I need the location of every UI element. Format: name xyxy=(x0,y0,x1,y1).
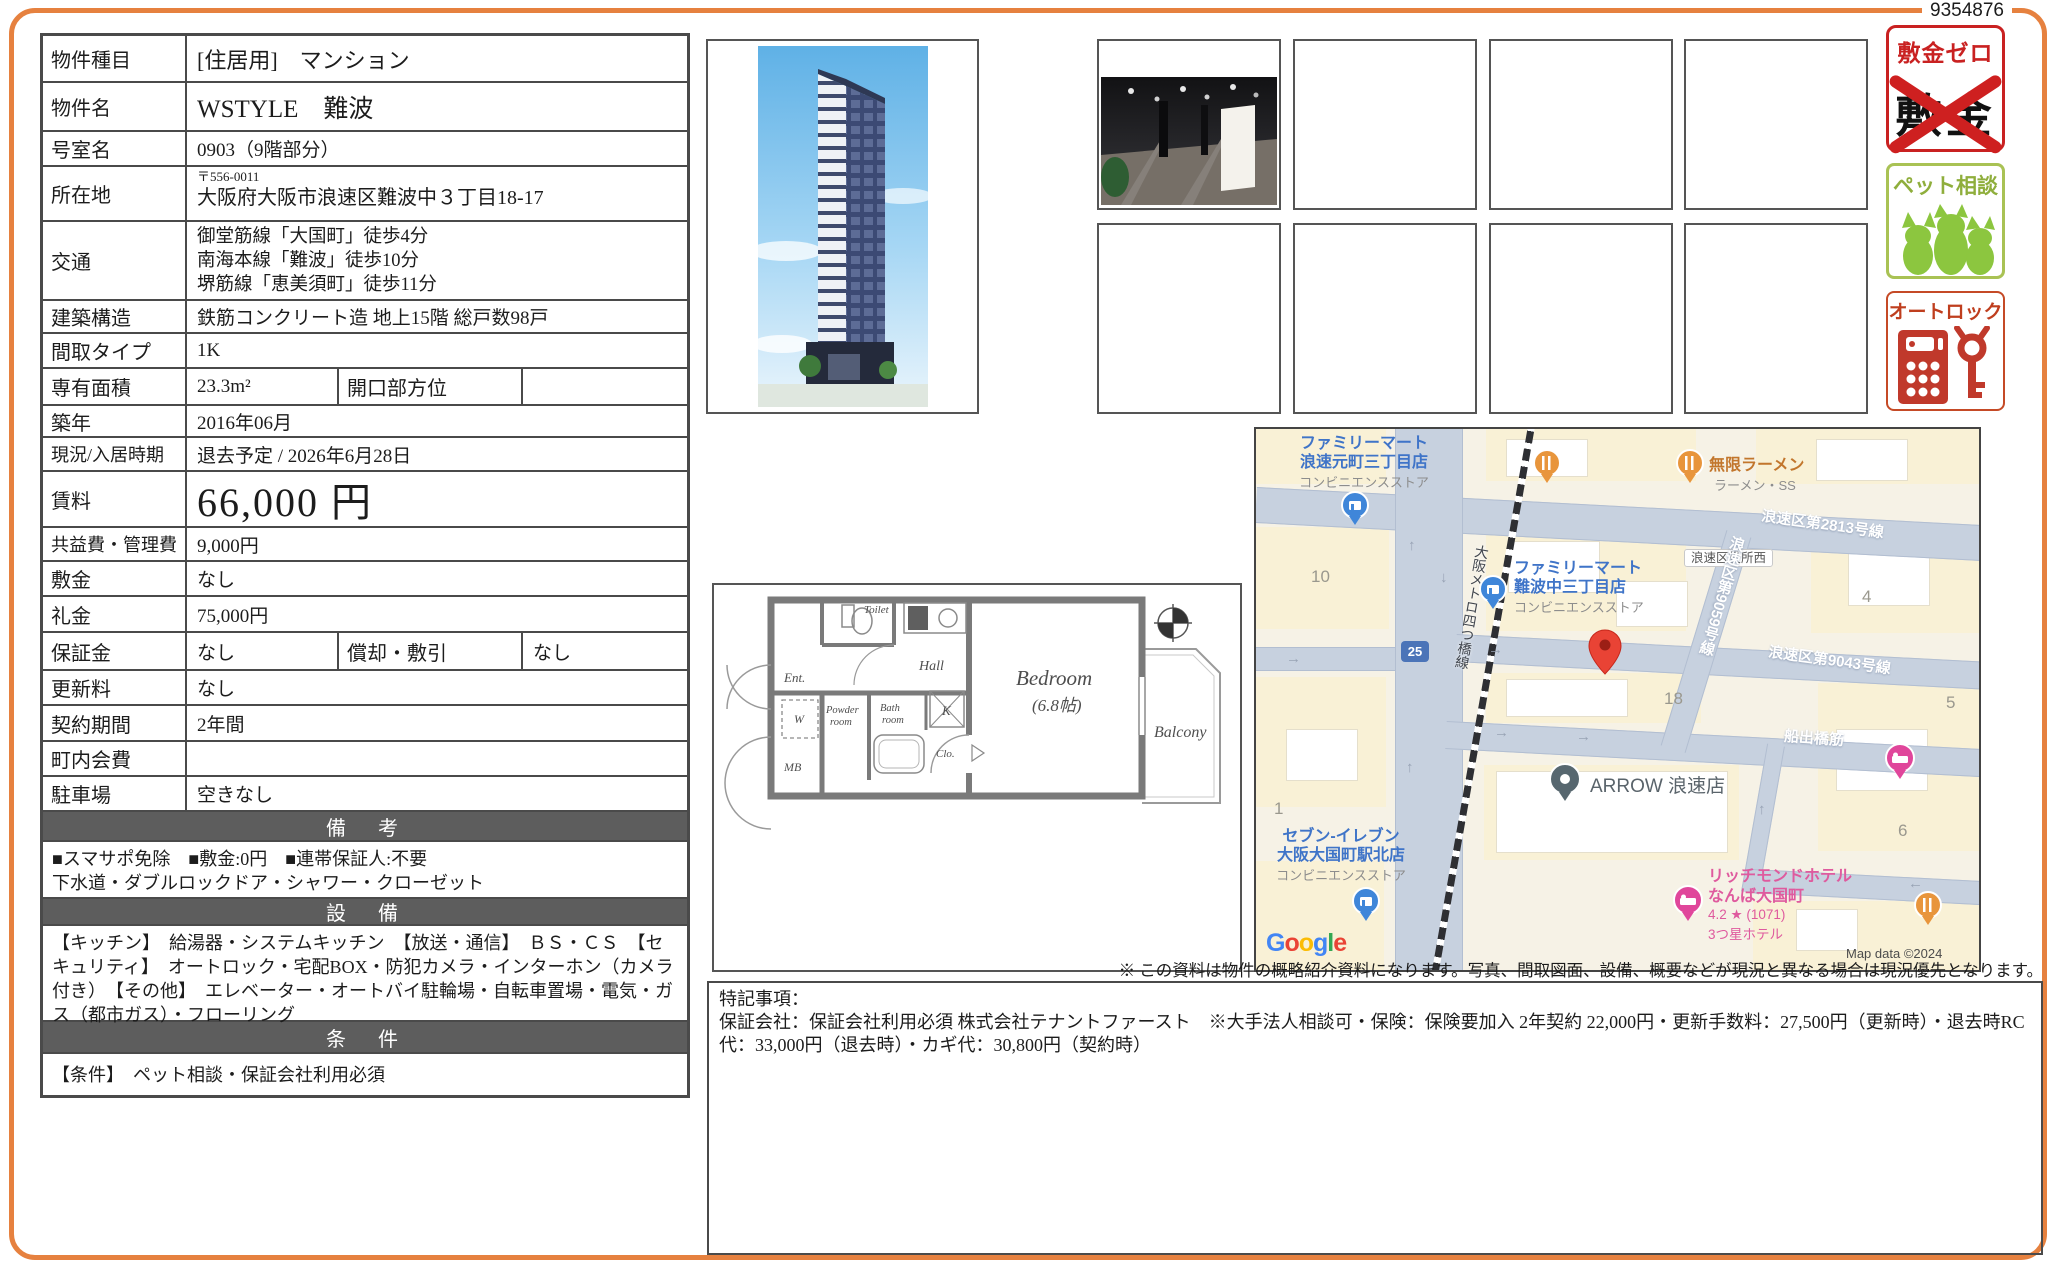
road-label-funade: 船出橋筋 xyxy=(1783,725,1844,750)
svg-text:Balcony: Balcony xyxy=(1154,724,1207,741)
poi-name: 浪速元町三丁目店 xyxy=(1284,453,1444,472)
floorplan-drawing: Balcony Toilet xyxy=(714,585,1240,970)
row-label: 町内会費 xyxy=(43,742,187,775)
poi-category: コンビニエンスストア xyxy=(1256,865,1426,884)
svg-text:Hall: Hall xyxy=(918,659,944,674)
table-row: 所在地 〒556-0011 大阪府大阪市浪速区難波中３丁目18-17 xyxy=(43,167,687,222)
section-header-equipment: 設 備 xyxy=(43,899,687,926)
empty-photo-box xyxy=(1489,223,1673,414)
badge-autolock-title: オートロック xyxy=(1888,297,2003,324)
svg-text:room: room xyxy=(882,715,904,726)
svg-text:Bedroom: Bedroom xyxy=(1016,666,1092,690)
poi-arrow-naniwa: ARROW 浪速店 xyxy=(1590,771,1725,798)
google-letter: e xyxy=(1333,929,1346,957)
table-row: 共益費・管理費 9,000円 xyxy=(43,528,687,562)
poi-name: ファミリーマート xyxy=(1284,434,1444,453)
row-label: 駐車場 xyxy=(43,777,187,810)
road-arrow: ↑ xyxy=(1758,801,1766,818)
empty-photo-box xyxy=(1097,223,1281,414)
table-row: 賃料 66,000 円 xyxy=(43,472,687,528)
row-label: 所在地 xyxy=(43,167,187,220)
poi-category: 3つ星ホテル xyxy=(1708,923,1852,943)
table-row: 築年 2016年06月 xyxy=(43,406,687,438)
row-value xyxy=(187,742,687,775)
table-row: 物件名 WSTYLE 難波 xyxy=(43,83,687,132)
row-value: 0903（9階部分） xyxy=(187,132,687,165)
table-row: 建築構造 鉄筋コンクリート造 地上15階 総戸数98戸 xyxy=(43,301,687,334)
poi-richmond: リッチモンドホテル なんば大国町 4.2 ★ (1071) 3つ星ホテル xyxy=(1708,867,1852,943)
poi-ramen: 無限ラーメン xyxy=(1709,451,1804,475)
row-value: なし xyxy=(187,671,687,704)
dogs-icon xyxy=(1894,202,1998,276)
sub-label: 開口部方位 xyxy=(337,369,523,404)
poi-familymart2: ファミリーマート 難波中三丁目店 コンビニエンスストア xyxy=(1514,559,1644,616)
svg-text:Bath: Bath xyxy=(880,703,900,714)
badge-pets-title: ペット相談 xyxy=(1889,170,2002,200)
property-location-pin xyxy=(1588,629,1622,675)
svg-text:Powder: Powder xyxy=(825,705,860,716)
row-label: 専有面積 xyxy=(43,369,187,404)
access-line: 御堂筋線「大国町」徒歩4分 xyxy=(197,225,687,249)
svg-text:K: K xyxy=(941,703,952,718)
autolock-icon xyxy=(1894,326,1998,408)
empty-photo-box xyxy=(1684,223,1868,414)
block-number: 6 xyxy=(1898,821,1907,841)
address-text: 大阪府大阪市浪速区難波中３丁目18-17 xyxy=(197,185,687,211)
row-label: 保証金 xyxy=(43,633,187,669)
access-line: 堺筋線「恵美須町」徒歩11分 xyxy=(197,273,687,297)
road-arrow: → xyxy=(1494,724,1509,741)
poi-category: コンビニエンスストア xyxy=(1284,472,1444,491)
row-value: [住居用] マンション xyxy=(187,36,687,81)
restaurant-pin-icon xyxy=(1532,449,1562,485)
google-letter: g xyxy=(1313,929,1327,957)
row-value: 鉄筋コンクリート造 地上15階 総戸数98戸 xyxy=(187,301,687,332)
sub-label: 償却・敷引 xyxy=(337,633,523,669)
table-row: 現況/入居時期 退去予定 / 2026年6月28日 xyxy=(43,438,687,472)
block-number: 1 xyxy=(1274,799,1283,819)
row-value: 1K xyxy=(187,334,687,367)
svg-text:(6.8帖): (6.8帖) xyxy=(1032,696,1082,715)
remarks-line: 下水道・ダブルロックドア・シャワー・クローゼット xyxy=(52,871,678,895)
road-arrow: ↑ xyxy=(1406,759,1414,776)
location-map: 大阪メトロ四つ橋線 → ↑ ↓ → → → ↑ ↑ ← ファミリーマート 浪速元… xyxy=(1254,427,1981,972)
row-label: 敷金 xyxy=(43,562,187,595)
table-row: 専有面積 23.3m² 開口部方位 xyxy=(43,369,687,406)
block-number: 10 xyxy=(1311,567,1330,587)
block-number: 5 xyxy=(1946,693,1955,713)
row-label: 現況/入居時期 xyxy=(43,438,187,470)
row-value: 〒556-0011 大阪府大阪市浪速区難波中３丁目18-17 xyxy=(187,167,687,220)
row-label: 間取タイプ xyxy=(43,334,187,367)
row-label: 交通 xyxy=(43,222,187,299)
route-shield-25: 25 xyxy=(1401,641,1429,662)
badge-autolock: オートロック xyxy=(1886,291,2005,411)
row-value: 空きなし xyxy=(187,777,687,810)
arrow-store-pin xyxy=(1548,763,1582,803)
document-number: 9354876 xyxy=(1922,0,2012,22)
table-row: 町内会費 xyxy=(43,742,687,777)
row-label: 契約期間 xyxy=(43,706,187,740)
table-row: 礼金 75,000円 xyxy=(43,597,687,633)
table-row: 駐車場 空きなし xyxy=(43,777,687,812)
special-notes-body: 保証会社：保証会社利用必須 株式会社テナントファースト ※大手法人相談可・保険：… xyxy=(719,1011,2031,1057)
poi-name: 大阪大国町駅北店 xyxy=(1256,846,1426,865)
road-arrow: ↑ xyxy=(1408,537,1416,554)
table-row: 契約期間 2年間 xyxy=(43,706,687,742)
svg-text:W: W xyxy=(794,712,805,726)
disclaimer-note: ※ この資料は物件の概略紹介資料になります。写真、間取図面、設備、概要などが現況… xyxy=(700,957,2043,981)
table-row: 物件種目 [住居用] マンション xyxy=(43,36,687,83)
row-value: 退去予定 / 2026年6月28日 xyxy=(187,438,687,470)
svg-text:Clo.: Clo. xyxy=(936,748,955,760)
special-notes-title: 特記事項： xyxy=(719,988,2031,1011)
map-building xyxy=(1506,679,1628,717)
row-label: 賃料 xyxy=(43,472,187,526)
badge-no-deposit-title: 敷金ゼロ xyxy=(1889,34,2002,68)
empty-photo-box xyxy=(1489,39,1673,210)
poi-category: コンビニエンスストア xyxy=(1514,597,1644,616)
poi-name: リッチモンドホテル xyxy=(1708,867,1852,887)
poi-seveneleven: セブン-イレブン 大阪大国町駅北店 コンビニエンスストア xyxy=(1256,827,1426,884)
svg-text:Ent.: Ent. xyxy=(783,670,805,685)
zip-code: 〒556-0011 xyxy=(197,169,687,185)
badge-pets-ok: ペット相談 xyxy=(1886,163,2005,279)
row-value: WSTYLE 難波 xyxy=(187,83,687,130)
row-label: 更新料 xyxy=(43,671,187,704)
block-number: 4 xyxy=(1862,587,1871,607)
row-label: 物件種目 xyxy=(43,36,187,81)
equipment-body: 【キッチン】 給湯器・システムキッチン 【放送・通信】 ＢＳ・ＣＳ 【セキュリテ… xyxy=(43,926,687,1022)
row-label: 共益費・管理費 xyxy=(43,528,187,560)
store-pin-icon xyxy=(1478,575,1508,611)
row-value: なし xyxy=(187,562,687,595)
road-arrow: ↓ xyxy=(1440,569,1448,586)
section-header-remarks: 備 考 xyxy=(43,812,687,842)
property-sheet: 9354876 物件種目 [住居用] マンション 物件名 WSTYLE 難波 号… xyxy=(0,0,2056,1265)
empty-photo-box xyxy=(1293,39,1477,210)
row-label: 物件名 xyxy=(43,83,187,130)
svg-text:Toilet: Toilet xyxy=(864,604,890,616)
remarks-line: ■スマサポ免除 ■敷金:0円 ■連帯保証人:不要 xyxy=(52,847,678,871)
rent-value: 66,000 円 xyxy=(187,472,687,526)
interior-photo xyxy=(1101,77,1277,205)
road-arrow: → xyxy=(1576,728,1591,745)
poi-category: ラーメン・SS xyxy=(1714,475,1796,494)
table-row: 交通 御堂筋線「大国町」徒歩4分 南海本線「難波」徒歩10分 堺筋線「恵美須町」… xyxy=(43,222,687,301)
map-building xyxy=(1286,729,1358,781)
poi-name: セブン-イレブン xyxy=(1256,827,1426,846)
road-arrow: ← xyxy=(1908,875,1923,892)
row-value: 御堂筋線「大国町」徒歩4分 南海本線「難波」徒歩10分 堺筋線「恵美須町」徒歩1… xyxy=(187,222,687,299)
google-letter: G xyxy=(1266,929,1284,957)
svg-text:MB: MB xyxy=(783,760,802,774)
svg-text:room: room xyxy=(830,717,852,728)
sub-value: なし xyxy=(523,633,687,669)
row-value: 2年間 xyxy=(187,706,687,740)
remarks-body: ■スマサポ免除 ■敷金:0円 ■連帯保証人:不要 下水道・ダブルロックドア・シャ… xyxy=(43,842,687,899)
row-value: なし xyxy=(187,633,337,669)
access-line: 南海本線「難波」徒歩10分 xyxy=(197,249,687,273)
poi-name: なんば大国町 xyxy=(1708,887,1852,907)
poi-familymart1: ファミリーマート 浪速元町三丁目店 コンビニエンスストア xyxy=(1284,434,1444,491)
store-pin-icon xyxy=(1340,491,1370,527)
row-label: 号室名 xyxy=(43,132,187,165)
table-row: 敷金 なし xyxy=(43,562,687,597)
badge-no-deposit: 敷金ゼロ 敷金 xyxy=(1886,25,2005,152)
map-building xyxy=(1816,439,1908,481)
hotel-pin-icon xyxy=(1672,885,1704,923)
poi-rating: 4.2 ★ (1071) xyxy=(1708,907,1852,923)
google-letter: o xyxy=(1299,929,1313,957)
row-value: 2016年06月 xyxy=(187,406,687,436)
poi-name: 難波中三丁目店 xyxy=(1514,578,1644,597)
table-row: 号室名 0903（9階部分） xyxy=(43,132,687,167)
building-photo xyxy=(758,46,928,407)
row-value: 9,000円 xyxy=(187,528,687,560)
row-label: 建築構造 xyxy=(43,301,187,332)
google-letter: o xyxy=(1284,929,1298,957)
row-label: 礼金 xyxy=(43,597,187,631)
poi-name: ファミリーマート xyxy=(1514,559,1644,578)
property-table: 物件種目 [住居用] マンション 物件名 WSTYLE 難波 号室名 0903（… xyxy=(40,33,690,1098)
restaurant-pin-icon xyxy=(1675,449,1705,485)
red-cross-icon xyxy=(1889,68,2002,156)
road-arrow: → xyxy=(1488,641,1503,658)
restaurant-pin-icon xyxy=(1913,891,1943,927)
row-label: 築年 xyxy=(43,406,187,436)
empty-photo-box xyxy=(1293,223,1477,414)
hotel-pin-icon xyxy=(1884,743,1916,781)
store-pin-icon xyxy=(1351,887,1381,923)
building-photo-box xyxy=(706,39,979,414)
table-row: 保証金 なし 償却・敷引 なし xyxy=(43,633,687,671)
map-road xyxy=(1256,647,1395,671)
row-value: 23.3m² xyxy=(187,369,337,404)
row-value: 75,000円 xyxy=(187,597,687,631)
sub-value xyxy=(523,369,687,404)
conditions-body: 【条件】 ペット相談・保証会社利用必須 xyxy=(43,1054,687,1095)
badge-no-deposit-graphic: 敷金 xyxy=(1889,68,2002,146)
road-arrow: → xyxy=(1286,650,1301,667)
table-row: 更新料 なし xyxy=(43,671,687,706)
table-row: 間取タイプ 1K xyxy=(43,334,687,369)
empty-photo-box xyxy=(1684,39,1868,210)
interior-photo-box xyxy=(1097,39,1281,210)
block-number: 18 xyxy=(1664,689,1683,709)
special-notes-box: 特記事項： 保証会社：保証会社利用必須 株式会社テナントファースト ※大手法人相… xyxy=(707,981,2043,1255)
floorplan-box: Balcony Toilet xyxy=(712,583,1242,972)
google-logo: Google xyxy=(1266,929,1346,958)
